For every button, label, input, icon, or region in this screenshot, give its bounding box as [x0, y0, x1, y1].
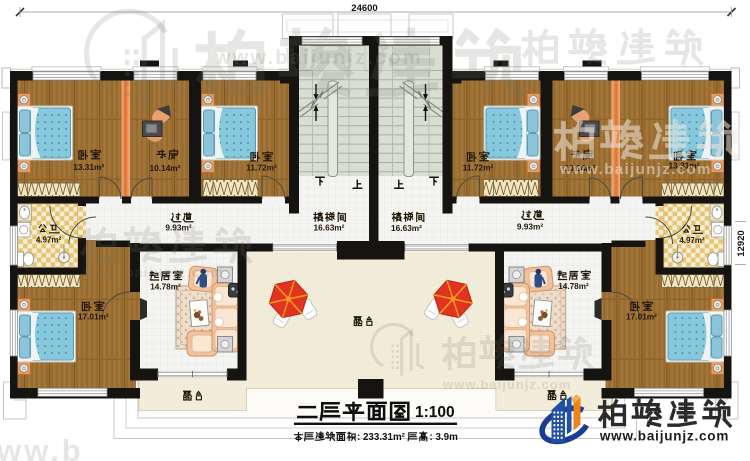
svg-text:www.baijunjz.com: www.baijunjz.com: [442, 377, 571, 392]
svg-text:17.01m²: 17.01m²: [78, 312, 109, 322]
svg-text:14.78m²: 14.78m²: [150, 282, 181, 291]
svg-text:www.baijunjz.com: www.baijunjz.com: [559, 161, 712, 178]
svg-text:16.63m²: 16.63m²: [314, 222, 345, 232]
svg-text:4.97m²: 4.97m²: [679, 236, 705, 245]
svg-text:: 233.31m²: : 233.31m²: [357, 432, 406, 443]
svg-text:11.72m²: 11.72m²: [246, 162, 277, 172]
svg-text:www.b: www.b: [0, 433, 84, 461]
svg-text:: 3.9m: : 3.9m: [430, 432, 459, 443]
svg-text:4.97m²: 4.97m²: [36, 235, 62, 244]
svg-text:12920: 12920: [736, 230, 747, 256]
svg-text:www.baijunjz.com: www.baijunjz.com: [83, 264, 224, 280]
svg-text:14.78m²: 14.78m²: [558, 282, 589, 291]
svg-text:13.31m²: 13.31m²: [73, 162, 104, 172]
svg-text:24600: 24600: [351, 3, 377, 14]
svg-text:www.baijunjz.com: www.baijunjz.com: [214, 47, 423, 69]
svg-text:10.14m²: 10.14m²: [150, 163, 181, 173]
svg-text:www.baijunjz.com: www.baijunjz.com: [599, 429, 729, 444]
svg-text:9.93m²: 9.93m²: [517, 222, 544, 232]
svg-text:11.72m²: 11.72m²: [463, 162, 494, 172]
svg-text:16.63m²: 16.63m²: [391, 223, 422, 233]
svg-text:17.01m²: 17.01m²: [626, 312, 657, 322]
svg-text:9.93m²: 9.93m²: [165, 223, 192, 233]
svg-text:1:100: 1:100: [415, 404, 455, 421]
